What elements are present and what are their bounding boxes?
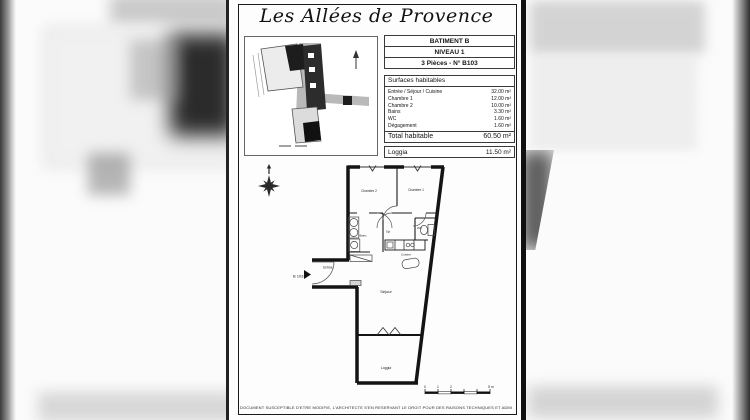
surfaces-table: Surfaces habitables Entrée / Séjour / Cu…: [384, 75, 515, 143]
room-label-dgt: Dgt: [386, 230, 390, 234]
surface-label: Bains: [388, 109, 401, 116]
page-title: Les Allées de Provence: [238, 5, 515, 27]
scale-tick-0: 0: [424, 385, 426, 389]
surface-value: 3.30 m²: [494, 109, 511, 116]
surface-value: 10.00 m²: [491, 103, 511, 110]
exterior-walls: [312, 166, 444, 384]
blurred-background-left: [10, 0, 228, 420]
scale-tick-5m: 5 m: [488, 385, 494, 389]
surface-value: 32.00 m²: [491, 89, 511, 96]
blur-blob: [38, 392, 238, 420]
closet-and-furniture: [350, 255, 420, 286]
total-value: 60.50 m²: [483, 133, 511, 140]
loggia-label: Loggia: [388, 149, 408, 156]
disclaimer-text: DOCUMENT SUSCEPTIBLE D'ETRE MODIFIE, L'A…: [240, 405, 512, 410]
site-plan-drawing: [245, 37, 375, 153]
room-label-cuisine: Cuisine: [401, 253, 411, 257]
surface-label: WC: [388, 116, 396, 123]
surface-row: Chambre 1 12.00 m²: [388, 96, 511, 103]
surface-value: 1.60 m²: [494, 123, 511, 130]
surface-value: 12.00 m²: [491, 96, 511, 103]
surfaces-header: Surfaces habitables: [385, 76, 514, 87]
surface-row: Dégagement 1.60 m²: [388, 123, 511, 130]
room-label-bains: Bains: [360, 234, 368, 238]
unit-row: 3 Pièces - N° B103: [384, 57, 515, 69]
door-swings: [312, 206, 426, 284]
scale-bar: 0 1 2 5 m: [424, 385, 494, 394]
room-label-loggia: Loggia: [381, 366, 391, 370]
room-label-chambre1: Chambre 1: [408, 188, 424, 192]
compass-rose-icon: [253, 164, 285, 202]
loggia-value: 11.50 m²: [486, 149, 511, 156]
room-label-wc: WC: [417, 226, 423, 230]
unit-number-label: B 103: [293, 274, 304, 279]
room-label-entree: Entrée: [323, 266, 333, 270]
room-label-sejour: Séjour: [380, 289, 392, 294]
surface-row: WC 1.60 m²: [388, 116, 511, 123]
north-arrow-icon: [353, 50, 359, 69]
surface-row: Entrée / Séjour / Cuisine 32.00 m²: [388, 89, 511, 96]
kitchen-fixtures: [387, 242, 414, 248]
interior-walls: [348, 167, 438, 252]
total-row: Total habitable 60.50 m²: [385, 131, 514, 142]
site-plan-buildings: [261, 44, 352, 143]
surface-label: Chambre 1: [388, 96, 413, 103]
room-label-chambre2: Chambre 2: [361, 189, 377, 193]
surface-value: 1.60 m²: [494, 116, 511, 123]
site-plan-parking-lines: [253, 53, 264, 97]
surface-row: Bains 3.30 m²: [388, 109, 511, 116]
bathroom-fixtures: [349, 217, 360, 252]
blur-blob: [130, 40, 180, 100]
site-plan-box: [244, 36, 378, 156]
photo-edge-shadow-left: [0, 0, 16, 420]
blur-blob: [530, 4, 705, 56]
surface-label: Dégagement: [388, 123, 417, 130]
total-label: Total habitable: [388, 133, 433, 140]
scale-tick-1: 1: [437, 385, 439, 389]
loggia-separator: [357, 328, 421, 336]
blur-blob: [110, 0, 235, 24]
blur-blob: [530, 58, 698, 153]
entrance-marker: B 103: [293, 270, 311, 279]
surface-label: Chambre 2: [388, 103, 413, 110]
page-edge-right: [521, 0, 526, 420]
toilet-icon: [420, 225, 434, 236]
blur-blob: [88, 153, 130, 195]
room-labels: Chambre 2 Chambre 1 Bains WC Dgt Cuisine…: [323, 188, 424, 370]
loggia-table: Loggia 11.50 m²: [384, 146, 515, 158]
blurred-background-right: [526, 0, 750, 420]
blur-blob: [528, 386, 718, 418]
surface-row: Chambre 2 10.00 m²: [388, 103, 511, 110]
surfaces-rows: Entrée / Séjour / Cuisine 32.00 m² Chamb…: [385, 87, 514, 131]
floor-plan-drawing: B 103 Chambre 2 Chambre 1 Bains WC Dgt C…: [293, 158, 497, 402]
building-info-table: BATIMENT B NIVEAU 1 3 Pièces - N° B103: [384, 36, 515, 69]
screenshot-stage: Les Allées de Provence: [0, 0, 750, 420]
surface-label: Entrée / Séjour / Cuisine: [388, 89, 442, 96]
scale-tick-2: 2: [450, 385, 452, 389]
photo-edge-shadow-right: [732, 0, 750, 420]
document-page: Les Allées de Provence: [229, 0, 521, 420]
